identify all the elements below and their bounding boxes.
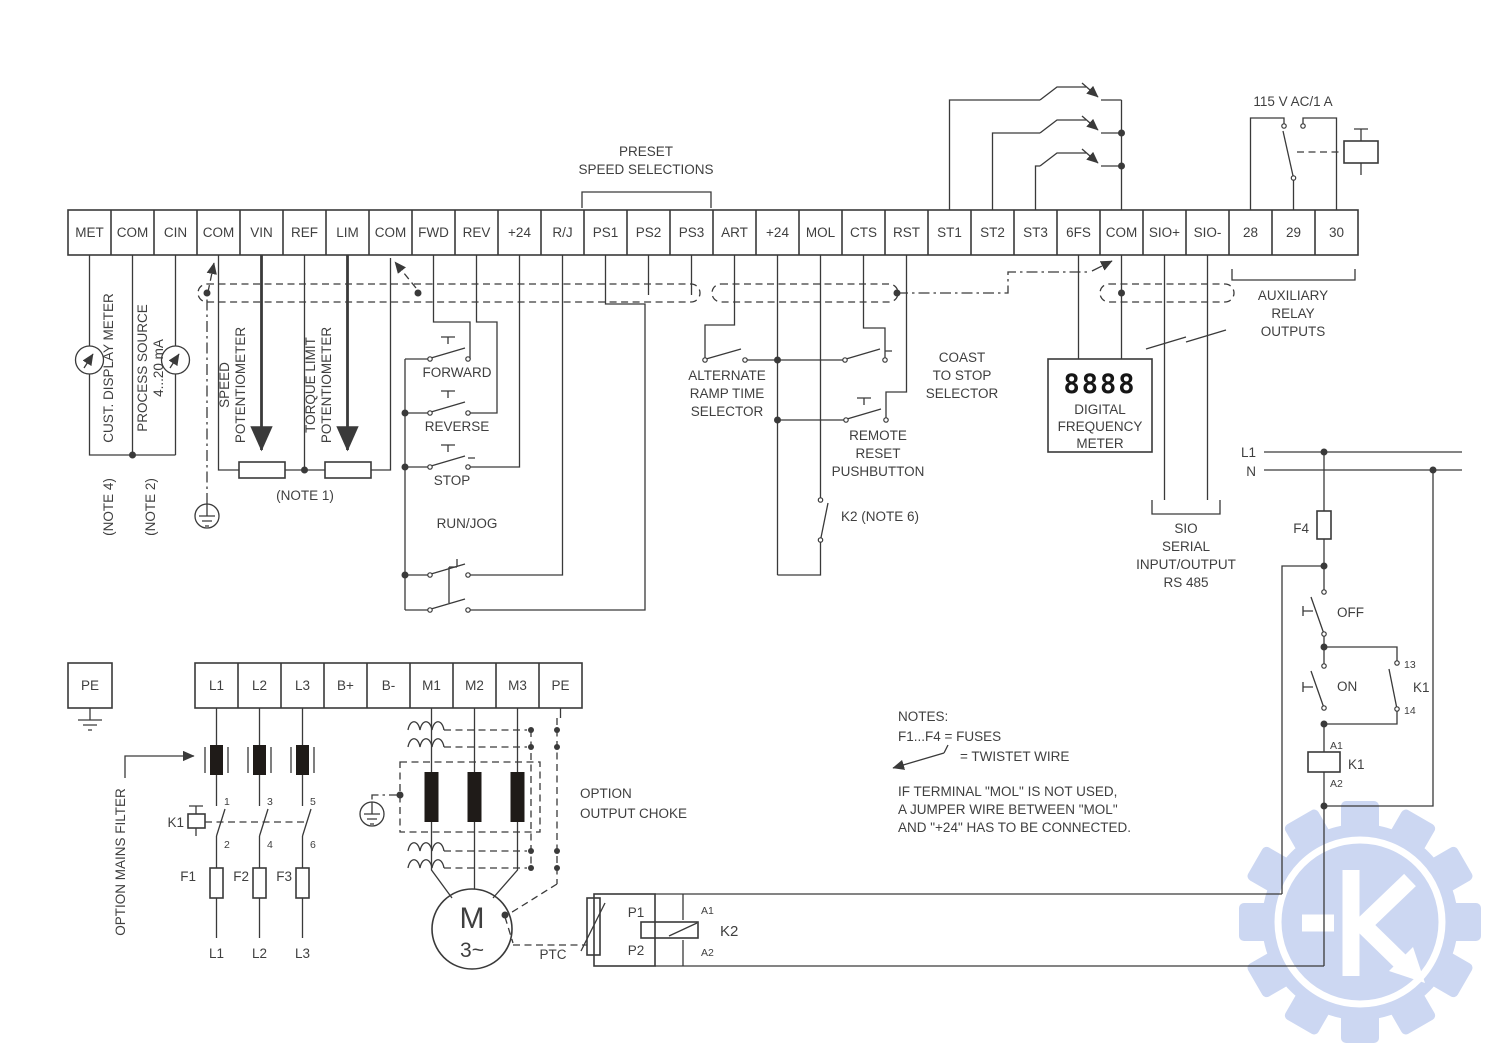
k1-coil-a2: A2: [1330, 778, 1343, 790]
pe-terminal-box: PE: [68, 663, 112, 730]
terminal-mol: MOL: [806, 225, 836, 240]
k1-coil-label: K1: [1348, 757, 1365, 772]
pwr-terminal-l1: L1: [209, 678, 224, 693]
cust-meter-label: CUST. DISPLAY METER: [101, 293, 116, 443]
aux-voltage-rating: 115 V AC/1 A: [1253, 94, 1332, 109]
terminal-rev: REV: [463, 225, 491, 240]
k1-contact-14: 14: [1404, 705, 1416, 717]
fuse-f3-icon: [296, 868, 309, 898]
k2-coil-a1: A1: [701, 905, 714, 917]
terminal-p24b: +24: [766, 225, 789, 240]
motor-phase-label: 3~: [460, 939, 484, 962]
schematic-canvas: MET COM CIN COM VIN REF LIM COM FWD REV …: [0, 0, 1500, 1050]
notes-fuses: F1...F4 = FUSES: [898, 729, 1001, 744]
terminal-28: 28: [1243, 225, 1258, 240]
dfm-label-2: FREQUENCY: [1058, 419, 1143, 434]
remote-reset-label-2: RESET: [855, 446, 900, 461]
terminal-29: 29: [1286, 225, 1301, 240]
contact-num-5: 5: [310, 796, 316, 808]
terminal-met: MET: [75, 225, 104, 240]
aux-label-3: OUTPUTS: [1261, 324, 1326, 339]
k2-coil-label: K2: [720, 923, 738, 940]
thermistor-relay-box: [594, 894, 655, 966]
f2-label: F2: [233, 869, 249, 884]
aux-label-2: RELAY: [1271, 306, 1314, 321]
on-button-contact: [1303, 671, 1324, 708]
transistor-icon: [1040, 87, 1086, 166]
terminal-lim: LIM: [336, 225, 359, 240]
fuse-f2-icon: [253, 868, 266, 898]
pwr-terminal-pe: PE: [551, 678, 569, 693]
contact-num-4: 4: [267, 839, 273, 851]
k1-aux-contact: [1324, 647, 1397, 724]
input-fuses: F1 F2 F3: [180, 868, 309, 898]
analog-meters-section: CUST. DISPLAY METER (NOTE 4) PROCESS SOU…: [76, 255, 190, 536]
sio-label-3: INPUT/OUTPUT: [1136, 557, 1236, 572]
note4-label: (NOTE 4): [101, 478, 116, 536]
note2-label: (NOTE 2): [143, 478, 158, 536]
pwr-terminal-bminus: B-: [382, 678, 396, 693]
off-button-contact: [1303, 597, 1324, 634]
notes-twisted: = TWISTET WIRE: [960, 749, 1069, 764]
terminal-ps1: PS1: [593, 225, 619, 240]
sio-label-1: SIO: [1174, 521, 1197, 536]
direction-switches: FORWARD REVERSE STOP RUN/JOG: [405, 255, 692, 610]
k2-coil-a2: A2: [701, 947, 714, 959]
terminal-st3: ST3: [1023, 225, 1048, 240]
terminal-vin: VIN: [250, 225, 273, 240]
preset-speed-annotation: PRESET SPEED SELECTIONS: [578, 144, 713, 208]
terminal-ref: REF: [291, 225, 318, 240]
pwr-terminal-m1: M1: [422, 678, 441, 693]
terminal-com2: COM: [203, 225, 235, 240]
cable-shield-b: [712, 284, 898, 302]
stop-label: STOP: [434, 473, 471, 488]
relay-coil-icon: [1344, 141, 1378, 163]
choke-coil-3: [511, 772, 525, 822]
pwr-terminal-m2: M2: [465, 678, 484, 693]
sio-label-2: SERIAL: [1162, 539, 1211, 554]
pwr-terminal-l2: L2: [252, 678, 267, 693]
choke-coil-2: [468, 772, 482, 822]
terminal-cin: CIN: [164, 225, 187, 240]
terminal-com1: COM: [117, 225, 149, 240]
shield-ground-icon: [195, 504, 219, 528]
sio-label-4: RS 485: [1163, 575, 1208, 590]
pwr-terminal-l3: L3: [295, 678, 310, 693]
notes-mol-1: IF TERMINAL "MOL" IS NOT USED,: [898, 784, 1117, 799]
speed-pot-label-2: POTENTIOMETER: [233, 327, 248, 444]
k2-note-label: K2 (NOTE 6): [841, 509, 919, 524]
notes-title: NOTES:: [898, 709, 948, 724]
terminal-sio-plus: SIO+: [1149, 225, 1180, 240]
torque-pot-icon: [325, 462, 371, 478]
speed-pot-icon: [239, 462, 285, 478]
choke-ground-icon: [360, 802, 384, 826]
preset-bracket: [582, 192, 711, 208]
status-transistor-outputs: [950, 83, 1122, 210]
notes-mol-2: A JUMPER WIRE BETWEEN "MOL": [898, 802, 1118, 817]
cable-shield-a: [198, 284, 700, 302]
k1-coil-a1: A1: [1330, 740, 1343, 752]
ramp-coast-reset-section: ALTERNATE RAMP TIME SELECTOR COAST TO ST…: [688, 255, 998, 575]
wiring-diagram-page: MET COM CIN COM VIN REF LIM COM FWD REV …: [0, 0, 1500, 1050]
phase-l2-label: L2: [252, 946, 267, 961]
notes-mol-3: AND "+24" HAS TO BE CONNECTED.: [898, 820, 1131, 835]
sio-bracket: [1152, 500, 1220, 514]
motor-m-label: M: [460, 902, 485, 935]
remote-reset-label-3: PUSHBUTTON: [832, 464, 925, 479]
remote-reset-label-1: REMOTE: [849, 428, 907, 443]
process-source-label-2: 4...20 mA: [151, 339, 166, 397]
l1-rail-label: L1: [1241, 445, 1256, 460]
torque-pot-label-1: TORQUE LIMIT: [303, 337, 318, 433]
phase-l1-label: L1: [209, 946, 224, 961]
runjog-mech-link: [449, 559, 457, 603]
terminal-sio-minus: SIO-: [1194, 225, 1222, 240]
contact-num-1: 1: [224, 796, 230, 808]
dfm-label-3: METER: [1076, 436, 1124, 451]
terminal-fwd: FWD: [418, 225, 449, 240]
terminal-p24a: +24: [508, 225, 531, 240]
torque-pot-label-2: POTENTIOMETER: [319, 327, 334, 444]
on-label: ON: [1337, 679, 1357, 694]
coast-label-2: TO STOP: [933, 368, 992, 383]
power-terminal-strip: L1 L2 L3 B+ B- M1 M2 M3 PE: [195, 663, 582, 708]
off-label: OFF: [1337, 605, 1364, 620]
choke-coil-1: [425, 772, 439, 822]
pe-label: PE: [81, 678, 99, 693]
f4-label: F4: [1293, 521, 1309, 536]
k1-main-contacts: K1 1 2 3 4 5 6: [167, 796, 316, 851]
runjog-label: RUN/JOG: [437, 516, 498, 531]
p2-label: P2: [628, 943, 645, 958]
pwr-terminal-bplus: B+: [337, 678, 354, 693]
process-source-label-1: PROCESS SOURCE: [135, 304, 150, 432]
aux-relay-section: 115 V AC/1 A AUXILIARY RELAY OUTPUTS: [1232, 94, 1378, 339]
terminal-com3: COM: [375, 225, 407, 240]
alt-ramp-label-1: ALTERNATE: [688, 368, 766, 383]
pwr-terminal-m3: M3: [508, 678, 527, 693]
note1-label: (NOTE 1): [276, 488, 334, 503]
brand-gear-watermark: [1239, 801, 1481, 1043]
terminal-rj: R/J: [552, 225, 572, 240]
terminal-30: 30: [1329, 225, 1344, 240]
choke-label-2: OUTPUT CHOKE: [580, 806, 687, 821]
mains-filter-icon: [205, 745, 314, 775]
relay-contact-blade: [1283, 131, 1294, 178]
junction-dots: [129, 130, 1437, 919]
f1-label: F1: [180, 869, 196, 884]
terminal-com4: COM: [1106, 225, 1138, 240]
terminal-ps3: PS3: [679, 225, 705, 240]
k2-contact: [778, 255, 829, 575]
control-terminal-strip: MET COM CIN COM VIN REF LIM COM FWD REV …: [68, 210, 1358, 255]
terminal-art: ART: [721, 225, 748, 240]
n-rail-label: N: [1246, 464, 1256, 479]
speed-pot-label-1: SPEED: [217, 362, 232, 408]
coast-label-3: SELECTOR: [926, 386, 999, 401]
alt-ramp-label-2: RAMP TIME: [690, 386, 765, 401]
choke-label-1: OPTION: [580, 786, 632, 801]
ptc-k2-section: A1 A2 K2 P1 P2 PTC: [505, 894, 1324, 966]
mains-input-section: OPTION MAINS FILTER K1 1 2 3 4 5 6 F1: [113, 708, 316, 961]
fuse-f4-icon: [1317, 511, 1331, 539]
k1-actuator-icon: [188, 814, 205, 828]
terminal-st2: ST2: [980, 225, 1005, 240]
k1-coil-icon: [1308, 752, 1340, 772]
preset-label-1: PRESET: [619, 144, 673, 159]
terminal-cts: CTS: [850, 225, 877, 240]
ptc-label: PTC: [540, 947, 567, 962]
notes-block: NOTES: F1...F4 = FUSES = TWISTET WIRE IF…: [893, 709, 1131, 835]
terminal-rst: RST: [893, 225, 920, 240]
contact-num-6: 6: [310, 839, 316, 851]
k1-contactor-label: K1: [167, 815, 184, 830]
alt-ramp-label-3: SELECTOR: [691, 404, 764, 419]
reverse-label: REVERSE: [425, 419, 490, 434]
k1-aux-label: K1: [1413, 680, 1430, 695]
fuse-f1-icon: [210, 868, 223, 898]
aux-label-1: AUXILIARY: [1258, 288, 1328, 303]
twisted-wire-icon: [1146, 330, 1226, 349]
contact-num-2: 2: [224, 839, 230, 851]
dfm-label-1: DIGITAL: [1074, 402, 1126, 417]
k1-contact-13: 13: [1404, 659, 1416, 671]
coast-label-1: COAST: [939, 350, 986, 365]
seven-segment-display: 8888: [1063, 369, 1136, 400]
phase-l3-label: L3: [295, 946, 310, 961]
contact-points: [428, 124, 1399, 711]
sio-section: SIO SERIAL INPUT/OUTPUT RS 485: [1136, 255, 1236, 590]
mains-filter-label: OPTION MAINS FILTER: [113, 788, 128, 936]
forward-label: FORWARD: [423, 365, 492, 380]
twisted-wire-legend-icon: [893, 745, 948, 768]
preset-label-2: SPEED SELECTIONS: [578, 162, 713, 177]
earth-ground-icon: [78, 708, 102, 730]
terminal-st1: ST1: [937, 225, 962, 240]
aux-bracket: [1232, 269, 1355, 280]
terminal-6fs: 6FS: [1066, 225, 1091, 240]
p1-label: P1: [628, 905, 645, 920]
contact-num-3: 3: [267, 796, 273, 808]
output-choke-motor-section: OPTION OUTPUT CHOKE M 3~: [360, 708, 687, 969]
potentiometer-section: SPEED POTENTIOMETER TORQUE LIMIT POTENTI…: [217, 255, 391, 503]
terminal-ps2: PS2: [636, 225, 662, 240]
f3-label: F3: [276, 869, 292, 884]
